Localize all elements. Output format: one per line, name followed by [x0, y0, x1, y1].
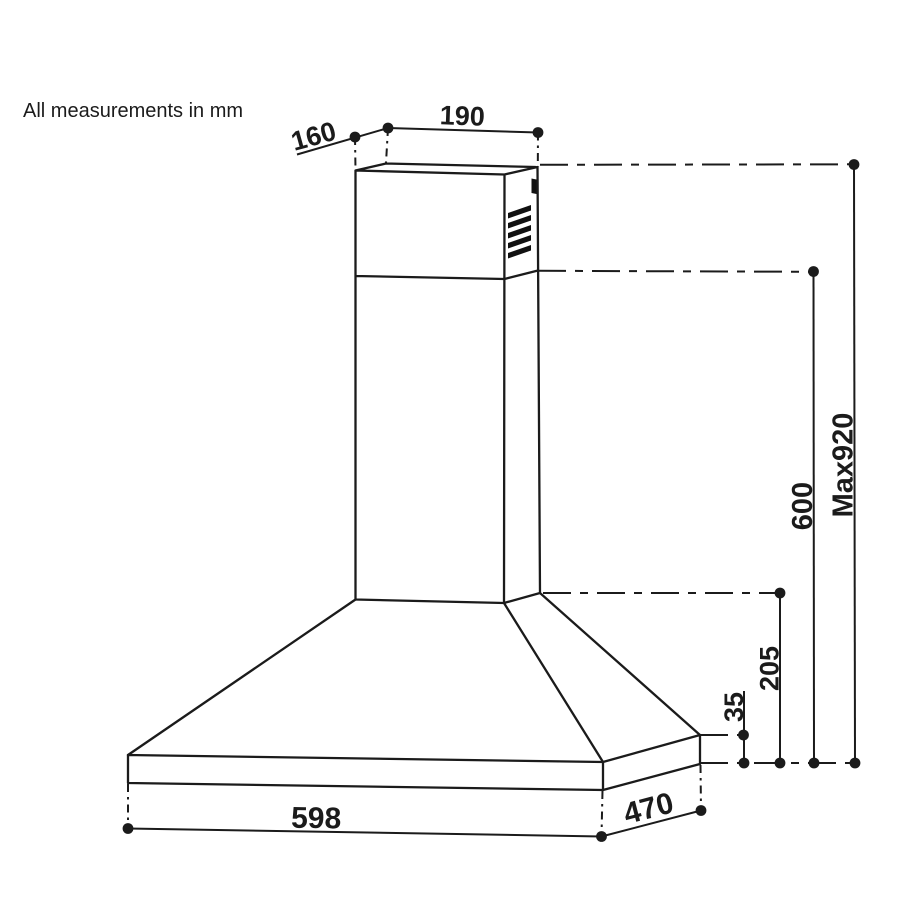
- dimension-endpoint-dot: [383, 123, 394, 134]
- base-band-outline: [128, 735, 700, 790]
- side-clip: [532, 179, 537, 195]
- dim-label-top-outlet-width: 190: [439, 100, 485, 132]
- centerline-duct-joint: [538, 271, 814, 272]
- dim-label-base-band-height: 35: [719, 692, 749, 722]
- witness-base-right: [602, 791, 603, 836]
- vent-louvres: [508, 205, 531, 259]
- dimension-endpoint-dot: [739, 758, 750, 769]
- dimension-labels: All measurements in mm 160 190 598 470 3…: [23, 100, 860, 835]
- dimension-endpoint-dot: [850, 758, 861, 769]
- dimension-centerlines: [538, 164, 855, 763]
- dim-label-hood-depth: 470: [620, 787, 677, 832]
- dim-label-top-outlet-depth: 160: [288, 116, 339, 157]
- dimension-endpoint-dot: [809, 758, 820, 769]
- measurement-note: All measurements in mm: [23, 100, 243, 122]
- dimension-endpoint-dot: [350, 132, 361, 143]
- witness-lines: [128, 128, 701, 836]
- dim-label-max-height: Max920: [828, 413, 860, 518]
- dimension-endpoint-dot: [738, 730, 749, 741]
- dimension-endpoint-dot: [696, 805, 707, 816]
- dimension-endpoint-dots: [123, 123, 861, 842]
- chimney-outline: [356, 164, 541, 604]
- dimension-endpoint-dot: [533, 127, 544, 138]
- canopy-outline: [128, 593, 700, 762]
- centerline-duct-top: [540, 164, 854, 165]
- dimension-endpoint-dot: [849, 159, 860, 170]
- dimension-line-598: [128, 829, 602, 837]
- dimension-endpoint-dot: [808, 266, 819, 277]
- dimension-endpoint-dot: [596, 831, 607, 842]
- dim-label-canopy-height: 205: [755, 646, 785, 691]
- dimension-endpoint-dot: [123, 823, 134, 834]
- hood-outline: [128, 164, 700, 791]
- witness-base-back: [701, 765, 702, 810]
- dim-label-chimney-height: 600: [787, 482, 819, 530]
- diagram-page: All measurements in mm 160 190 598 470 3…: [0, 0, 922, 922]
- dimension-endpoint-dot: [775, 588, 786, 599]
- dim-label-hood-width: 598: [291, 802, 342, 836]
- hood-dimension-diagram: All measurements in mm 160 190 598 470 3…: [0, 0, 922, 922]
- dimension-endpoint-dot: [775, 758, 786, 769]
